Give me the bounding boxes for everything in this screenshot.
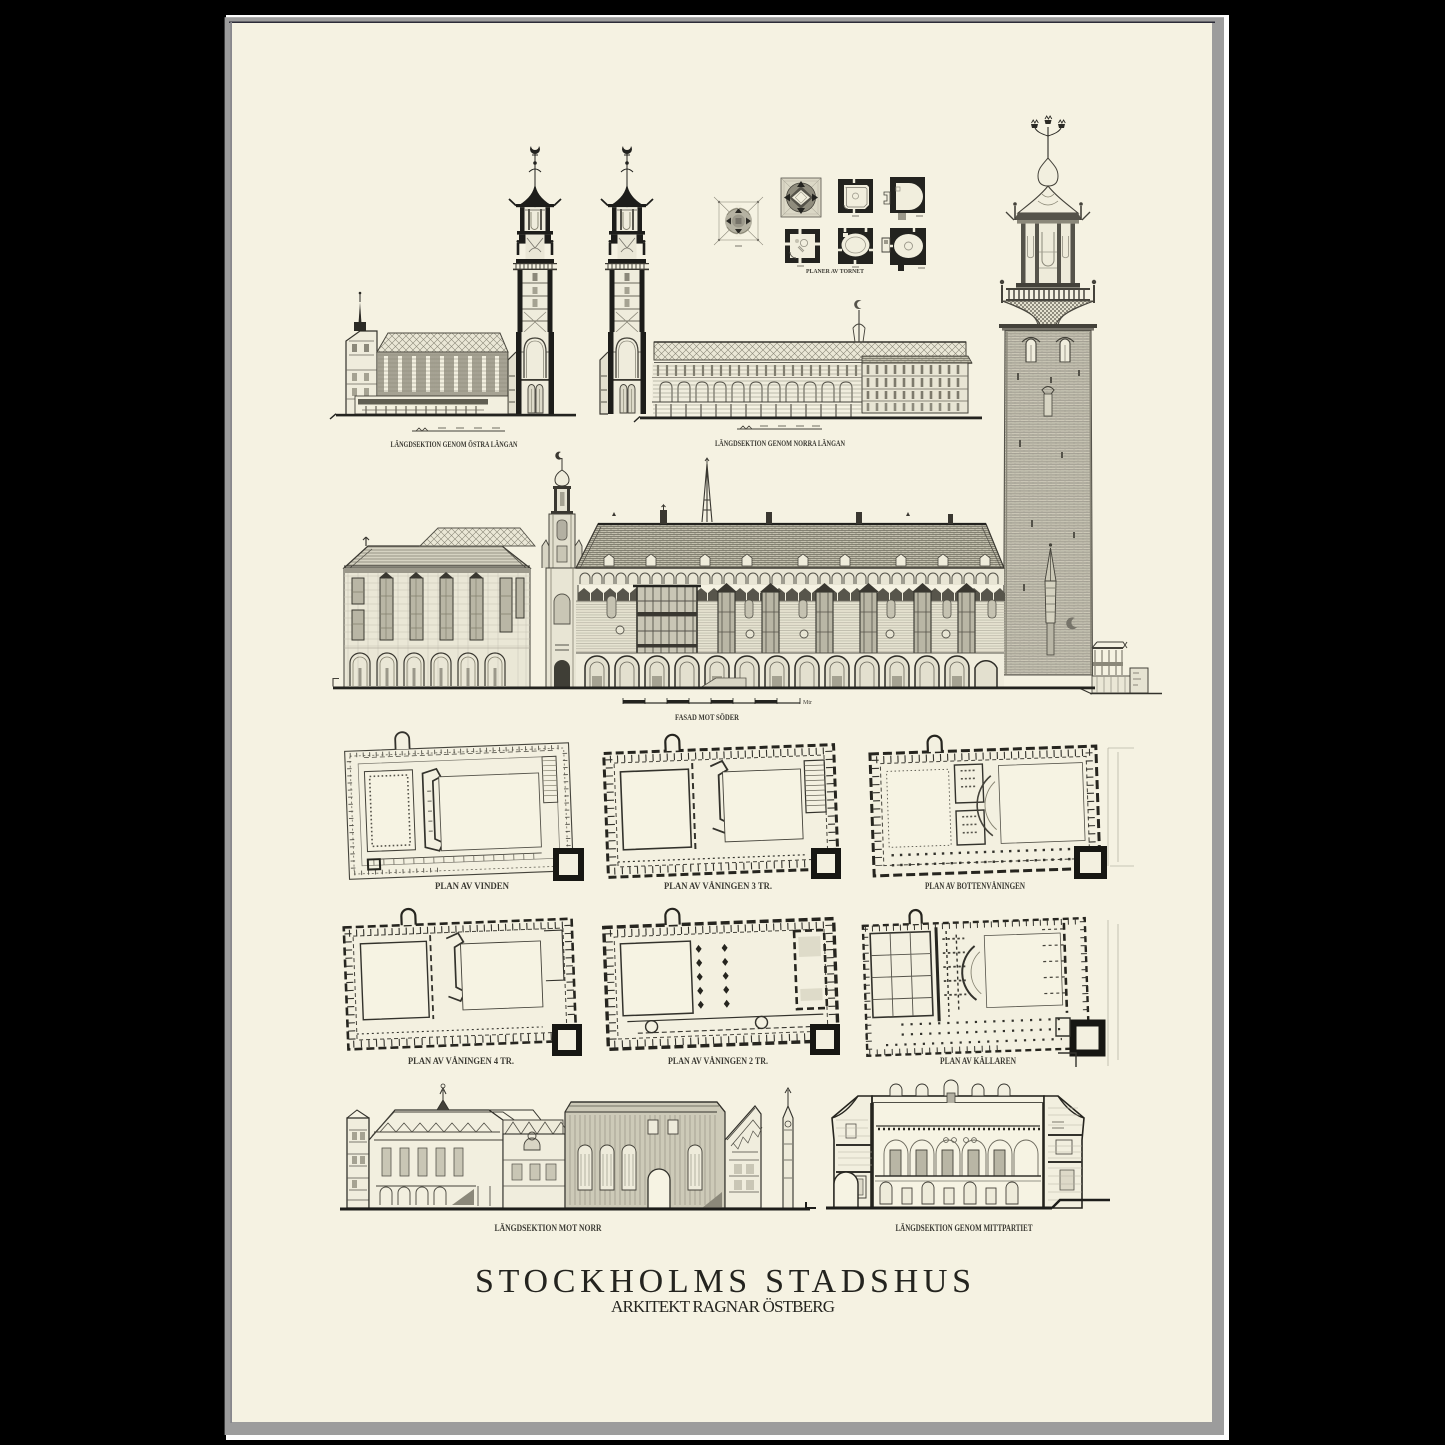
svg-text:FASAD MOT SÖDER: FASAD MOT SÖDER <box>675 712 740 722</box>
svg-text:LÄNGDSEKTION GENOM ÖSTRA LÄNGA: LÄNGDSEKTION GENOM ÖSTRA LÄNGAN <box>391 439 519 449</box>
svg-text:PLAN AV KÄLLAREN: PLAN AV KÄLLAREN <box>940 1056 1016 1066</box>
svg-text:ARKITEKT RAGNAR ÖSTBERG: ARKITEKT RAGNAR ÖSTBERG <box>611 1297 835 1316</box>
svg-text:PLANER AV TORNET: PLANER AV TORNET <box>806 268 865 275</box>
svg-text:PLAN AV VINDEN: PLAN AV VINDEN <box>435 881 509 891</box>
svg-text:LÄNGDSEKTION GENOM NORRA LÄNGA: LÄNGDSEKTION GENOM NORRA LÄNGAN <box>715 438 846 448</box>
svg-text:Mtr: Mtr <box>803 700 812 706</box>
svg-text:PLAN AV VÅNINGEN 2 TR.: PLAN AV VÅNINGEN 2 TR. <box>668 1056 768 1066</box>
svg-text:PLAN AV VÅNINGEN 3 TR.: PLAN AV VÅNINGEN 3 TR. <box>664 881 772 891</box>
svg-text:LÄNGDSEKTION GENOM MITTPARTIET: LÄNGDSEKTION GENOM MITTPARTIET <box>896 1223 1033 1233</box>
svg-text:LÄNGDSEKTION MOT NORR: LÄNGDSEKTION MOT NORR <box>495 1223 602 1233</box>
svg-text:PLAN AV BOTTENVÅNINGEN: PLAN AV BOTTENVÅNINGEN <box>925 881 1025 891</box>
svg-text:PLAN AV VÅNINGEN 4 TR.: PLAN AV VÅNINGEN 4 TR. <box>408 1056 514 1066</box>
